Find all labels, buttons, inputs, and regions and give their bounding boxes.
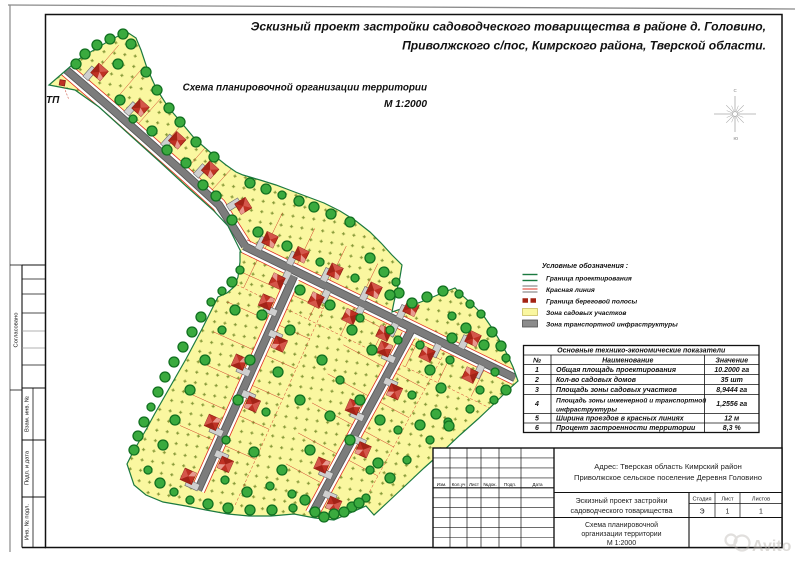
svg-text:8,3 %: 8,3 % (723, 425, 742, 432)
svg-text:Условные обозначения :: Условные обозначения : (542, 262, 628, 270)
svg-text:Адрес: Тверская область Кимр: Адрес: Тверская область Кимрский район (594, 462, 742, 471)
svg-text:Процент застроенности территор: Процент застроенности территории (556, 425, 696, 432)
svg-text:Зона садовых участков: Зона садовых участков (546, 309, 626, 317)
svg-text:Наименование: Наименование (602, 358, 653, 365)
svg-text:1,2556 га: 1,2556 га (716, 401, 747, 408)
svg-text:организации территории: организации территории (581, 531, 661, 538)
svg-text:2: 2 (534, 377, 539, 384)
svg-text:Значение: Значение (715, 358, 748, 365)
svg-text:ТП: ТП (46, 95, 60, 106)
svg-text:М 1:2000: М 1:2000 (607, 540, 636, 547)
svg-text:Согласовано: Согласовано (14, 313, 20, 348)
svg-text:Инв. № подл.: Инв. № подл. (25, 504, 31, 540)
svg-text:Взам. инв. №: Взам. инв. № (25, 396, 31, 432)
svg-text:Avito: Avito (752, 538, 792, 555)
svg-text:Лист: Лист (469, 482, 480, 487)
svg-text:инфраструктуры: инфраструктуры (556, 407, 617, 414)
svg-text:Подп.: Подп. (504, 482, 516, 487)
svg-text:Приволжского с/пос, Кимрского: Приволжского с/пос, Кимрского района, Тв… (402, 39, 766, 53)
svg-text:6: 6 (535, 425, 539, 432)
svg-text:Площадь зоны инженерной и тран: Площадь зоны инженерной и транспортной (556, 397, 706, 405)
svg-text:Граница береговой полосы: Граница береговой полосы (546, 298, 638, 306)
svg-text:3: 3 (535, 387, 539, 394)
svg-text:Ширина проездов в красных лини: Ширина проездов в красных линиях (556, 415, 685, 423)
svg-text:1: 1 (726, 509, 730, 516)
svg-text:садоводческого товарищества: садоводческого товарищества (571, 506, 673, 515)
svg-text:№: № (532, 358, 541, 365)
svg-text:1: 1 (535, 367, 539, 374)
svg-text:10.2000 га: 10.2000 га (714, 367, 749, 374)
svg-text:Площадь зоны садовых участков: Площадь зоны садовых участков (556, 386, 678, 394)
svg-text:Эскизный проект застройки: Эскизный проект застройки (575, 496, 667, 505)
svg-text:Зона транспортной инфраструкту: Зона транспортной инфраструктуры (546, 321, 678, 329)
svg-text:Граница проектирования: Граница проектирования (546, 276, 632, 283)
svg-text:Подп. и дата: Подп. и дата (25, 450, 31, 485)
svg-text:Эскизный проект застройки садо: Эскизный проект застройки садоводческого… (251, 20, 766, 34)
svg-text:4: 4 (534, 401, 539, 408)
svg-text:Основные технико-экономические: Основные технико-экономические показател… (557, 348, 726, 355)
svg-text:Схема планировочной организаци: Схема планировочной организации территор… (183, 83, 427, 94)
svg-text:Приволжское сельское поселение: Приволжское сельское поселение Деревня Г… (574, 473, 762, 482)
svg-text:№док.: №док. (483, 482, 496, 487)
svg-text:Кол.уч: Кол.уч (452, 482, 466, 487)
svg-text:5: 5 (535, 416, 539, 423)
svg-text:Лист: Лист (721, 497, 734, 503)
svg-text:Ю: Ю (734, 136, 739, 141)
svg-text:Изм.: Изм. (437, 482, 447, 487)
svg-text:Красная линия: Красная линия (546, 287, 595, 294)
svg-text:8,9444 га: 8,9444 га (716, 387, 747, 394)
svg-text:Общая площадь проектирования: Общая площадь проектирования (556, 366, 676, 374)
svg-text:Кол-во садовых домов: Кол-во садовых домов (556, 376, 637, 384)
svg-text:Э: Э (699, 509, 704, 516)
svg-text:Стадия: Стадия (692, 497, 711, 503)
svg-text:Схема планировочной: Схема планировочной (585, 521, 658, 529)
svg-text:1: 1 (759, 509, 763, 516)
svg-text:Дата: Дата (532, 482, 543, 487)
svg-text:М 1:2000: М 1:2000 (384, 99, 427, 110)
svg-text:35 шт: 35 шт (721, 377, 743, 384)
svg-text:Листов: Листов (752, 497, 770, 503)
svg-text:12 м: 12 м (724, 416, 740, 423)
